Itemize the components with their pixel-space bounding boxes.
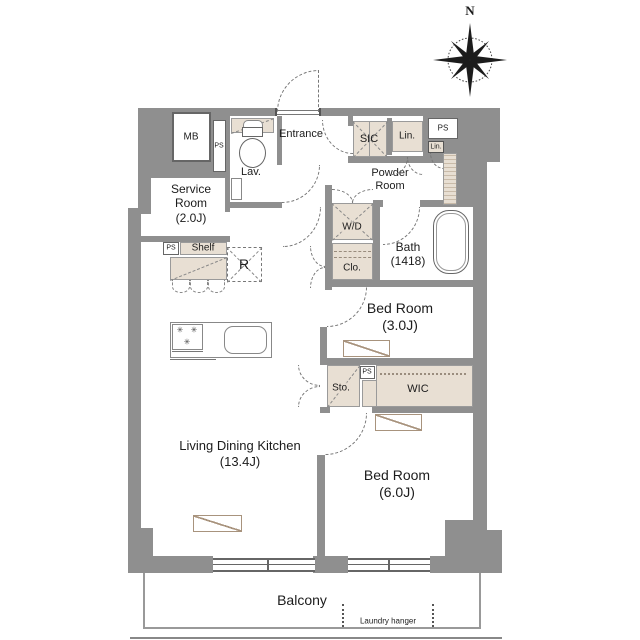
closet [332,243,373,280]
bifold-door-arc [298,386,320,407]
exterior-wall [128,208,141,558]
service-room-label: Service Room (2.0J) [155,182,227,225]
laundry-hanger-post [342,604,344,627]
bedroom-3j-label: Bed Room (3.0J) [358,300,442,334]
bifold-door-arc [298,365,320,386]
meter-box-label: MB [184,132,199,143]
exterior-wall-column [445,520,487,573]
washer-dryer-label: W/D [341,222,362,233]
window-rail [213,564,315,565]
compass-rose-icon [428,14,512,98]
door-swing-arc [283,207,321,247]
furniture [375,414,422,431]
interior-wall [325,280,473,287]
balcony-rail [143,627,481,629]
closet-shelf-line [334,251,371,252]
ldk-label: Living Dining Kitchen (13.4J) [155,438,325,469]
lavatory-cabinet [231,178,242,200]
exterior-wall [138,116,151,208]
bifold-door-arc [310,267,325,288]
furniture [193,515,242,532]
closet-label: Clo. [343,263,361,274]
toilet-tank [242,127,263,137]
refrigerator-label: R [239,256,249,272]
entrance-door-leaf [277,114,320,115]
curtain-scallop [172,280,190,293]
kitchen-sink [224,326,267,354]
exterior-wall [320,108,500,116]
interior-wall [277,116,282,165]
exterior-wall-column [487,530,502,573]
wic-dotted-row [380,373,466,375]
pipe-space-label: PS [438,124,449,133]
vanity-counter [443,153,457,205]
compass-north-label: N [465,3,474,19]
interior-wall [372,407,473,413]
wic-label: WIC [407,383,428,395]
storage-sto-label: Sto. [332,383,350,394]
laundry-hanger-post [432,604,434,627]
door-swing-arc [430,153,444,169]
linen-label: Lin. [399,131,415,142]
pipe-space-label: PS [166,245,175,252]
window-mullion [267,558,269,572]
curtain-scallop [208,280,225,293]
counter-edge [170,359,216,360]
balcony-label: Balcony [277,592,327,608]
stove-edge [172,351,203,352]
shaft-wall-block [457,153,487,207]
exterior-wall [313,556,348,573]
window-mullion [388,558,390,572]
curtain-scallop [190,280,208,293]
stove-burner-icon: ✳ [191,326,198,335]
balcony-rail [143,573,145,628]
interior-wall [373,200,383,207]
interior-wall [320,327,327,358]
bifold-door-arc [310,246,325,267]
stove-burner-icon: ✳ [177,326,184,335]
pipe-space-label: PS [362,369,371,376]
interior-wall [325,203,332,290]
toilet-bowl [239,138,266,168]
bedroom-6j-label: Bed Room (6.0J) [355,467,439,501]
linen-small-label: Lin. [430,144,441,151]
sliding-window [213,558,315,572]
pipe-space-label: PS [214,143,223,150]
interior-wall [230,202,282,208]
door-leaf-open [318,70,319,112]
door-jamb [319,108,321,116]
sic-label: SIC [360,133,378,145]
bifold-door-arc [332,189,353,203]
exterior-wall [430,556,445,573]
laundry-hanger-label: Laundry hanger [360,617,416,626]
interior-wall [320,358,473,365]
stove-burner-icon: ✳ [184,338,191,347]
exterior-wall-column [128,556,213,573]
shelf-label: Shelf [192,243,215,254]
furniture [343,340,390,357]
exterior-wall [138,208,151,214]
floor-plan: N MB PS Lav. Entrance [0,0,640,640]
closet-shelf-line [334,257,371,258]
door-swing-arc [325,413,367,455]
interior-wall [317,455,325,558]
bifold-door-arc [352,189,373,203]
interior-wall [325,185,332,203]
door-swing-arc [322,120,353,154]
walk-in-closet [362,380,377,407]
building-edge-line [130,637,502,639]
lavatory-label: Lav. [241,166,261,178]
exterior-wall [473,162,487,530]
balcony-rail [479,573,481,628]
door-swing-arc [282,165,320,203]
entrance-label: Entrance [279,128,323,140]
door-swing-arc [277,70,319,112]
